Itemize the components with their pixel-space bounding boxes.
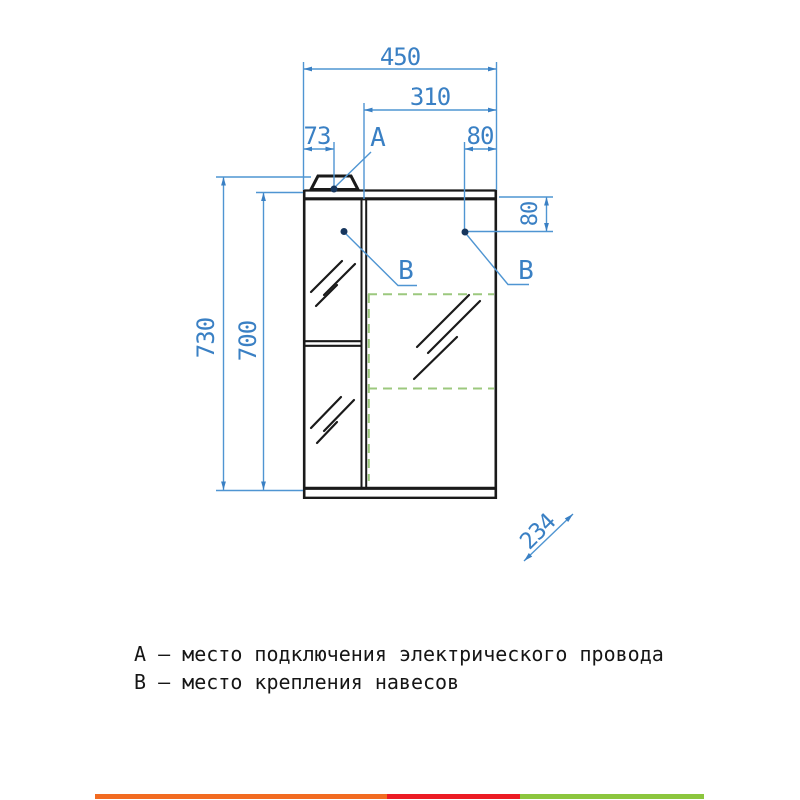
callout-label-b-left: В bbox=[391, 259, 421, 283]
cabinet-outline bbox=[303, 176, 497, 499]
legend-line-a: А – место подключения электрического про… bbox=[134, 643, 664, 665]
dim-right-offset: 80 bbox=[457, 124, 503, 148]
dim-left-offset: 73 bbox=[294, 124, 340, 148]
callout-dot-a bbox=[331, 186, 338, 193]
mirror-zone-dashed bbox=[368, 294, 494, 481]
callout-dots bbox=[331, 186, 469, 236]
dim-width-total: 450 bbox=[370, 45, 430, 69]
callout-leaders bbox=[334, 152, 529, 286]
footer-bar-red-segment bbox=[387, 794, 520, 799]
dim-height-body: 700 bbox=[236, 311, 260, 371]
footer-bar-orange-segment bbox=[95, 794, 387, 799]
technical-drawing-page: 450 310 73 80 80 730 700 234 А В В А – м… bbox=[0, 0, 800, 800]
legend-line-b: В – место крепления навесов bbox=[134, 671, 459, 693]
mirror-hatch-marks bbox=[311, 261, 480, 443]
dim-height-total: 730 bbox=[194, 308, 218, 368]
dimension-lines bbox=[216, 62, 573, 561]
callout-dot-b-right bbox=[462, 229, 469, 236]
callout-label-a: А bbox=[363, 126, 393, 150]
callout-dot-b-left bbox=[341, 228, 348, 235]
callout-label-b-right: В bbox=[511, 259, 541, 283]
dim-side-depth-offset: 80 bbox=[519, 194, 543, 234]
dim-width-right-door: 310 bbox=[400, 85, 460, 109]
footer-bar-green-segment bbox=[520, 794, 704, 799]
